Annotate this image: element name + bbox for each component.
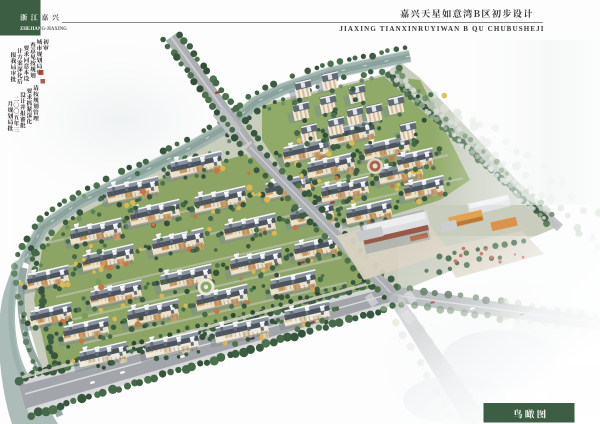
svg-text:JIAXING TIANXINRUYIWAN B QU CH: JIAXING TIANXINRUYIWAN B QU CHUBUSHEJI — [339, 25, 544, 33]
